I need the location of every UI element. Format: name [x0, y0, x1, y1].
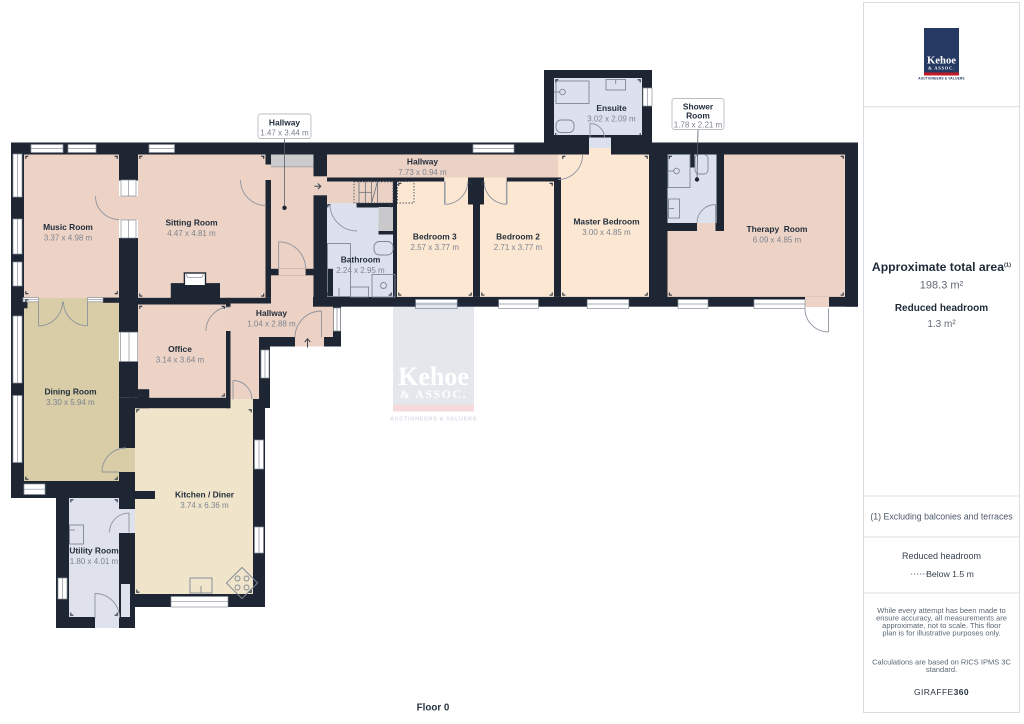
svg-text:1.3 m²: 1.3 m²: [927, 319, 956, 330]
svg-text:Hallway: Hallway: [269, 118, 301, 128]
svg-text:Hallway: Hallway: [407, 157, 439, 167]
svg-text:6.09 x 4.85 m: 6.09 x 4.85 m: [753, 236, 802, 245]
svg-text:198.3 m²: 198.3 m²: [920, 280, 964, 292]
svg-text:Master Bedroom: Master Bedroom: [573, 217, 639, 227]
svg-text:plan is for illustrative purpo: plan is for illustrative purposes only.: [882, 629, 1000, 638]
svg-text:Approximate total area(1): Approximate total area(1): [872, 260, 1011, 274]
svg-text:(1) Excluding balconies and te: (1) Excluding balconies and terraces: [870, 512, 1013, 522]
svg-text:4.47 x 4.81 m: 4.47 x 4.81 m: [167, 229, 216, 238]
svg-text:Room: Room: [686, 111, 710, 121]
svg-text:Kitchen / Diner: Kitchen / Diner: [175, 490, 235, 500]
svg-text:Below 1.5 m: Below 1.5 m: [926, 569, 974, 579]
svg-text:1.04 x 2.88 m: 1.04 x 2.88 m: [247, 320, 296, 329]
svg-text:AUCTIONEERS & VALUERS: AUCTIONEERS & VALUERS: [918, 76, 964, 80]
svg-text:Ensuite: Ensuite: [596, 103, 627, 113]
svg-text:GIRAFFE360: GIRAFFE360: [914, 687, 969, 697]
svg-text:Music Room: Music Room: [43, 222, 93, 232]
svg-text:Bathroom: Bathroom: [341, 255, 381, 265]
svg-text:& ASSOC.: & ASSOC.: [400, 387, 467, 401]
svg-text:AUCTIONEERS & VALUERS: AUCTIONEERS & VALUERS: [390, 417, 477, 423]
svg-text:Floor 0: Floor 0: [417, 703, 450, 714]
svg-text:7.73 x 0.94 m: 7.73 x 0.94 m: [398, 168, 447, 177]
svg-text:3.74 x 6.36 m: 3.74 x 6.36 m: [180, 501, 229, 510]
svg-text:2.71 x 3.77 m: 2.71 x 3.77 m: [494, 243, 543, 252]
svg-text:1.80 x 4.01 m: 1.80 x 4.01 m: [70, 557, 119, 566]
svg-text:1.47 x 3.44 m: 1.47 x 3.44 m: [260, 129, 309, 138]
svg-text:1.78 x 2.21 m: 1.78 x 2.21 m: [674, 121, 723, 130]
svg-text:2.24 x 2.95 m: 2.24 x 2.95 m: [336, 266, 385, 275]
svg-text:Utility Room: Utility Room: [69, 546, 118, 556]
svg-text:Therapy Room: Therapy Room: [747, 224, 808, 234]
svg-text:Bedroom 3: Bedroom 3: [413, 232, 457, 242]
svg-text:& ASSOC.: & ASSOC.: [928, 65, 955, 70]
svg-text:3.02 x 2.09 m: 3.02 x 2.09 m: [587, 115, 636, 124]
svg-text:Hallway: Hallway: [256, 308, 288, 318]
svg-text:Bedroom 2: Bedroom 2: [496, 232, 540, 242]
svg-text:Reduced headroom: Reduced headroom: [895, 303, 988, 314]
svg-text:3.00 x 4.85 m: 3.00 x 4.85 m: [582, 228, 631, 237]
svg-text:3.37 x 4.98 m: 3.37 x 4.98 m: [44, 234, 93, 243]
svg-text:2.57 x 3.77 m: 2.57 x 3.77 m: [411, 243, 460, 252]
svg-text:Reduced headroom: Reduced headroom: [902, 551, 981, 561]
svg-text:Office: Office: [168, 344, 192, 354]
svg-text:3.30 x 5.94 m: 3.30 x 5.94 m: [46, 398, 95, 407]
svg-text:3.14 x 3.64 m: 3.14 x 3.64 m: [156, 356, 205, 365]
svg-text:Sitting Room: Sitting Room: [165, 218, 217, 228]
svg-text:Dining Room: Dining Room: [44, 387, 96, 397]
svg-text:standard.: standard.: [926, 665, 957, 674]
